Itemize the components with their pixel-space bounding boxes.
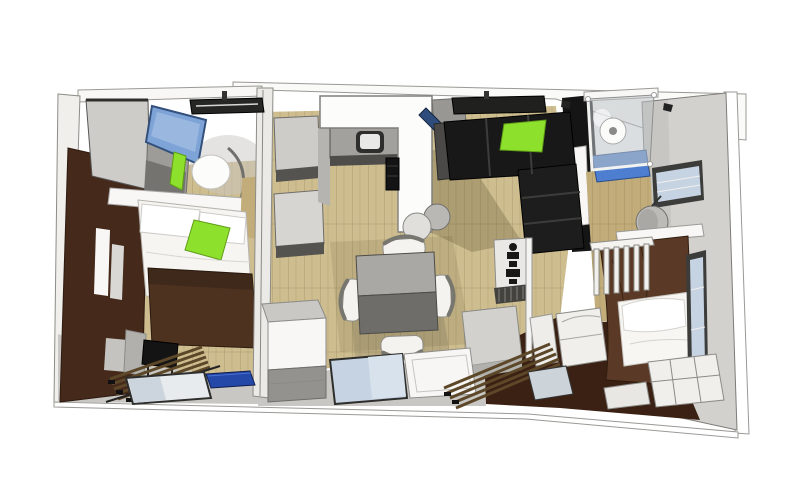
counter-side: [318, 128, 330, 206]
glazed-door-pane: [368, 354, 406, 399]
rail-bar: [644, 244, 649, 290]
hatch-vent: [484, 91, 489, 99]
support-pole: [526, 238, 532, 360]
roof-hatch: [452, 96, 546, 114]
tall-cabinet: [274, 190, 324, 248]
wall-niche: [94, 228, 110, 296]
shower-head-center: [609, 127, 617, 135]
sink-basin: [360, 134, 380, 149]
frame-knob: [586, 97, 591, 102]
wall-niche: [110, 244, 124, 300]
frame-knob: [648, 162, 653, 167]
rail-bar: [624, 246, 629, 292]
rail-bar: [604, 248, 609, 294]
floorplan-canvas: [0, 0, 800, 480]
front-window-pane: [128, 377, 166, 403]
oven-column: [386, 158, 399, 190]
hatch-vent: [222, 91, 227, 100]
high-window: [652, 160, 704, 208]
rail-bar: [614, 247, 619, 293]
round-headboard-lamp: [192, 155, 230, 189]
rail-bar: [594, 249, 599, 295]
floorplan-render: [0, 0, 800, 480]
storage-drawers: [648, 354, 724, 407]
double-bed: [138, 200, 258, 348]
front-window-small: [528, 366, 573, 400]
table-top-lit: [356, 252, 436, 296]
window-glass: [690, 257, 705, 368]
pillow: [622, 298, 686, 331]
table-top-shaded: [358, 292, 438, 334]
cabinet-drawers: [268, 366, 326, 402]
frame-knob: [652, 93, 657, 98]
entrance-cabinet: [262, 300, 326, 402]
rail-bar: [634, 245, 639, 291]
tall-cabinet: [274, 116, 320, 172]
green-sofa-cushion: [500, 120, 546, 152]
overhead-cabinet: [86, 100, 150, 190]
cabinet-front: [268, 318, 326, 370]
